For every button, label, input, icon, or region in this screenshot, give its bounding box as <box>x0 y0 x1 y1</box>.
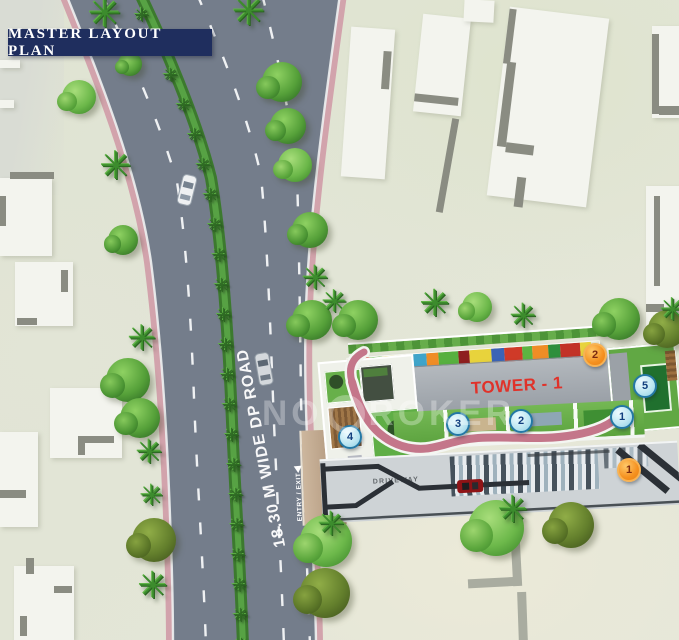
tree <box>270 108 306 144</box>
median-palm-tree <box>232 576 247 594</box>
median-palm-tree <box>176 96 191 114</box>
median-palm-tree <box>134 6 149 24</box>
median-palm-tree <box>230 546 245 564</box>
page-title: MASTER LAYOUT PLAN <box>8 26 212 60</box>
tree <box>548 502 594 548</box>
tree <box>300 568 350 618</box>
palm-tree <box>232 0 266 32</box>
marker-orange-1: 1 <box>617 458 641 482</box>
median-palm-tree <box>220 366 235 384</box>
median-palm-tree <box>196 156 211 174</box>
palm-tree <box>138 568 168 604</box>
median-palm-tree <box>222 396 237 414</box>
median-palm-tree <box>229 516 244 534</box>
palm-tree <box>498 492 528 528</box>
tree <box>292 212 328 248</box>
median-palm-tree <box>211 246 226 264</box>
tree <box>106 358 150 402</box>
tree <box>598 298 640 340</box>
median-palm-tree <box>234 636 249 640</box>
marker-blue-4: 4 <box>338 425 362 449</box>
tree <box>120 398 160 438</box>
marker-orange-2: 2 <box>583 343 607 367</box>
marker-blue-5: 5 <box>633 374 657 398</box>
median-palm-tree <box>226 456 241 474</box>
palm-tree <box>100 148 132 186</box>
tree <box>62 80 96 114</box>
median-palm-tree <box>214 276 229 294</box>
median-palm-tree <box>207 216 222 234</box>
palm-tree <box>136 436 163 468</box>
entry-arrow-icon <box>294 466 303 474</box>
palm-tree <box>420 286 450 322</box>
marker-blue-3: 3 <box>446 412 470 436</box>
median-palm-tree <box>203 186 218 204</box>
palm-tree <box>128 322 157 356</box>
median-palm-tree <box>163 66 178 84</box>
title-banner: MASTER LAYOUT PLAN <box>8 29 212 56</box>
palm-tree <box>660 296 679 326</box>
master-layout-plan: TOWER - 1 DRIVEWAY <box>0 0 679 640</box>
tree <box>262 62 302 102</box>
palm-tree <box>318 508 345 540</box>
median-palm-tree <box>228 486 243 504</box>
marker-blue-2: 2 <box>509 409 533 433</box>
palm-tree <box>510 300 537 332</box>
tree <box>108 225 138 255</box>
median-palm-tree <box>187 126 202 144</box>
tree <box>132 518 176 562</box>
median-palm-tree <box>224 426 239 444</box>
tree <box>338 300 378 340</box>
tree <box>278 148 312 182</box>
marker-blue-1: 1 <box>610 405 634 429</box>
median-palm-tree <box>216 306 231 324</box>
palm-tree <box>140 482 163 510</box>
tree <box>462 292 492 322</box>
median-palm-tree <box>233 606 248 624</box>
